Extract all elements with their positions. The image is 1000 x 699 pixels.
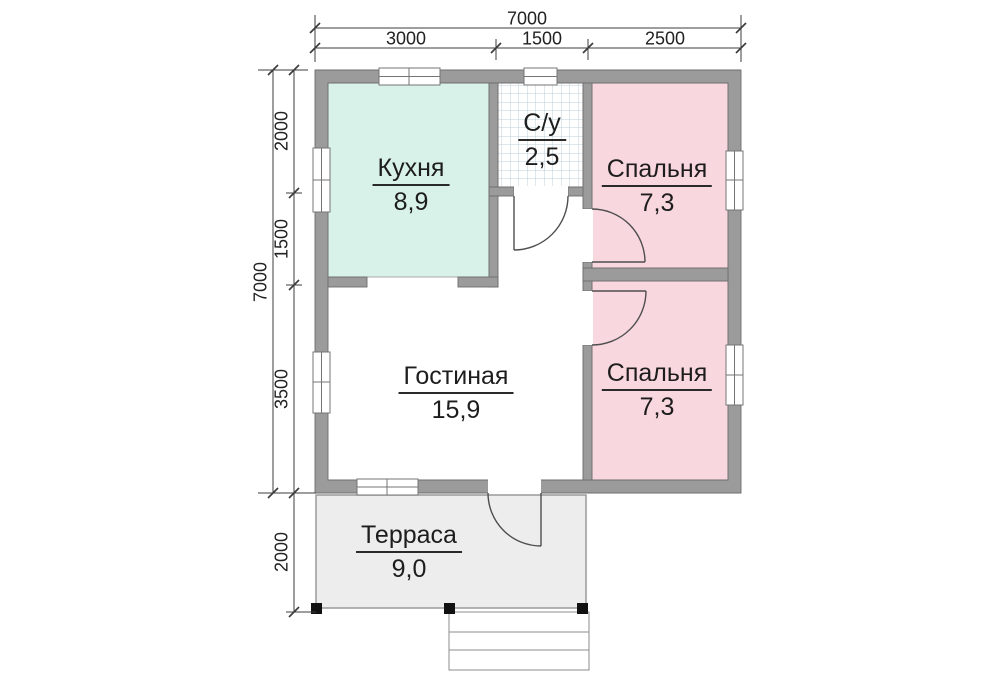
entrance-steps (449, 612, 589, 670)
terrace-door-opening (488, 479, 541, 494)
bedroom2-window (726, 345, 743, 405)
room-label-bedroom1: Спальня 7,3 (602, 156, 712, 217)
kitchen-area: 8,9 (373, 189, 450, 216)
bedroom1-area: 7,3 (602, 190, 712, 217)
living-name: Гостиная (399, 363, 514, 394)
door-openings (488, 186, 593, 494)
kitchen-window (379, 68, 440, 85)
dim-top-total: 7000 (507, 9, 547, 30)
bathroom-door-opening (514, 186, 568, 197)
room-label-bedroom2: Спальня 7,3 (602, 360, 712, 421)
floor-plan-canvas: 7000 3000 1500 2500 7000 2000 1500 3500 … (0, 0, 1000, 699)
dim-left-total: 7000 (251, 262, 272, 302)
wall-bedrooms-left-lower (583, 345, 592, 480)
dim-top-segment-3: 2500 (645, 29, 685, 50)
floor-plan-drawing (0, 0, 1000, 699)
room-label-bathroom: С/у 2,5 (518, 110, 566, 171)
wall-kitchen-right (489, 83, 498, 287)
room-label-terrace: Терраса 9,0 (356, 522, 462, 583)
dim-left-segment-1: 2000 (272, 111, 293, 151)
terrace-post-middle (444, 603, 455, 614)
wall-kitchen-bottom-left (328, 277, 367, 287)
left-window-upper (313, 148, 330, 212)
bedroom1-window (726, 151, 743, 210)
terrace-area: 9,0 (356, 556, 462, 583)
living-area: 15,9 (399, 397, 514, 424)
bedroom2-door-opening (582, 291, 593, 345)
bedroom2-name: Спальня (602, 360, 712, 391)
dim-terrace-depth: 2000 (272, 532, 293, 572)
left-window-lower (313, 352, 330, 413)
room-label-kitchen: Кухня 8,9 (373, 155, 450, 216)
kitchen-name: Кухня (373, 155, 450, 186)
bedroom1-door-opening (582, 209, 593, 262)
wall-kitchen-bottom-right (458, 277, 498, 287)
terrace-name: Терраса (356, 522, 462, 553)
wall-bedrooms-divider (583, 268, 728, 281)
living-window (357, 479, 418, 495)
bathroom-name: С/у (518, 110, 566, 141)
bathroom-door-arc (514, 196, 568, 250)
dim-left-segment-3: 3500 (272, 369, 293, 409)
bedroom1-name: Спальня (602, 156, 712, 187)
wall-bathroom-bottom-left (489, 187, 514, 196)
wall-bedrooms-left-upper (583, 83, 592, 209)
bathroom-area: 2,5 (518, 144, 566, 171)
bedroom2-area: 7,3 (602, 394, 712, 421)
room-label-living: Гостиная 15,9 (399, 363, 514, 424)
bathroom-window (524, 68, 557, 85)
dim-left-segment-2: 1500 (272, 219, 293, 259)
dim-top-segment-1: 3000 (386, 29, 426, 50)
dim-top-segment-2: 1500 (522, 29, 562, 50)
terrace-post-right (577, 603, 588, 614)
